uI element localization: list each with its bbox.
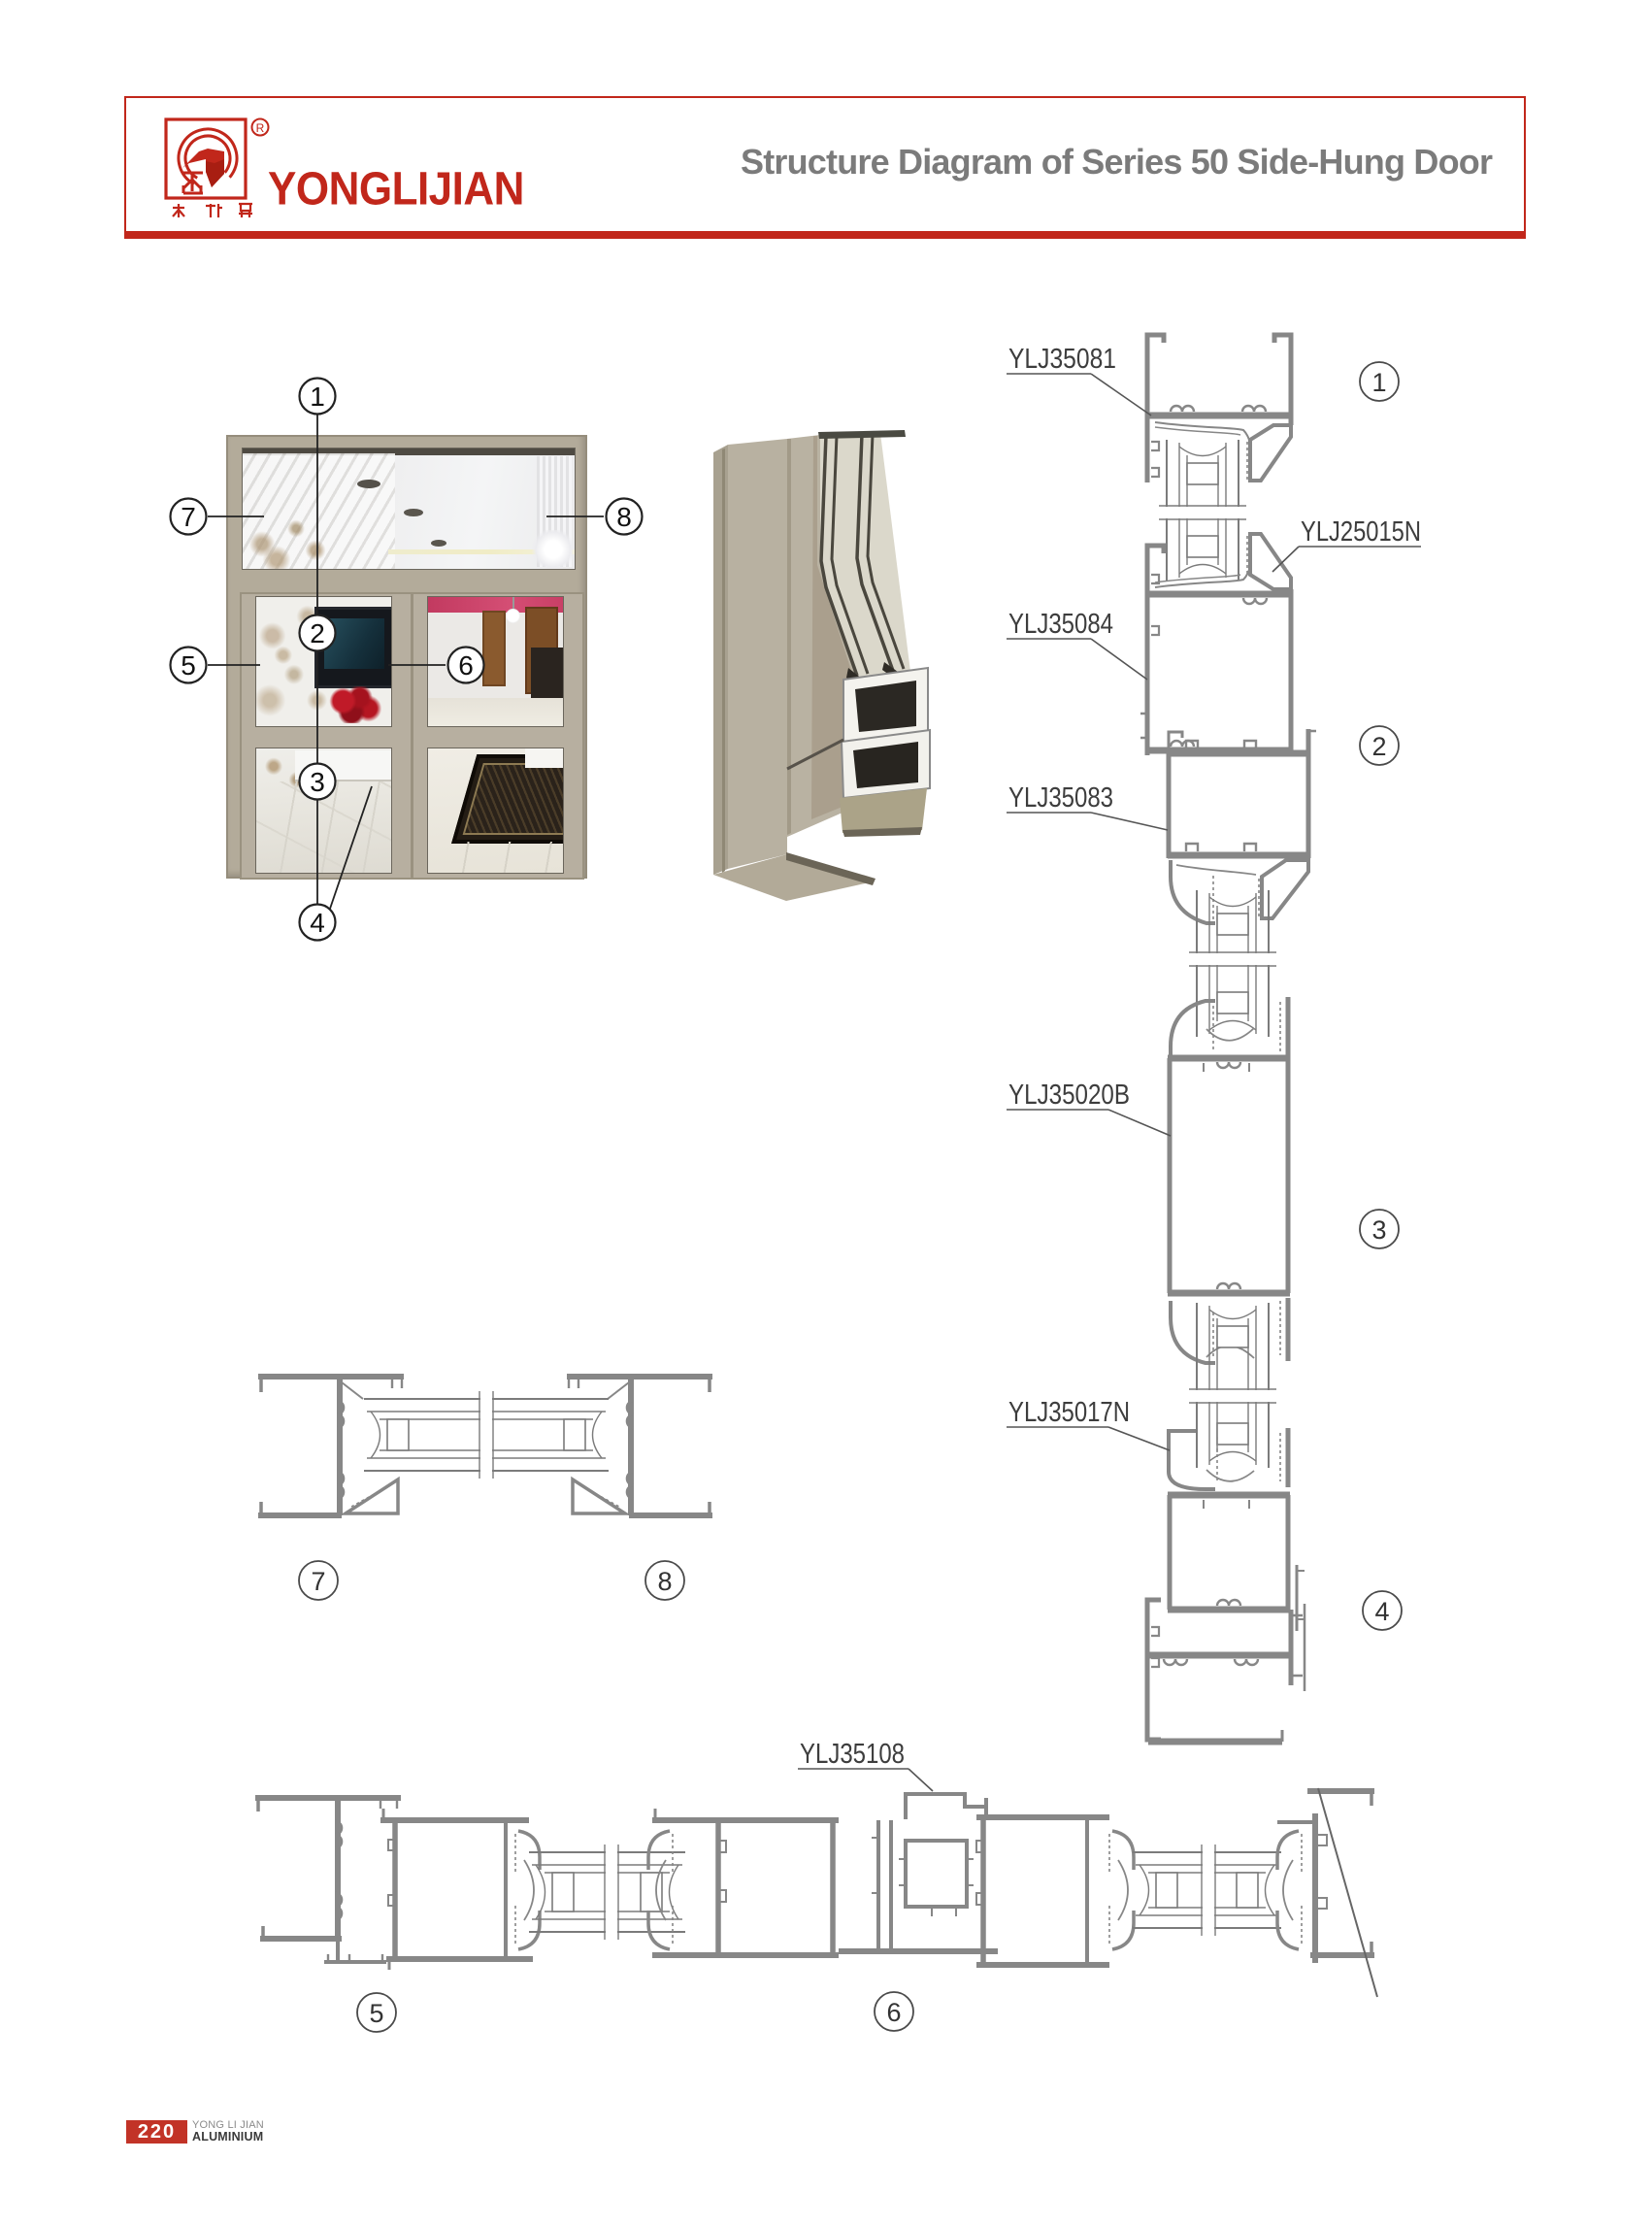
svg-text:4: 4: [310, 908, 325, 938]
svg-text:1: 1: [1371, 368, 1386, 397]
svg-text:8: 8: [616, 502, 632, 532]
svg-text:YLJ35020B: YLJ35020B: [1008, 1080, 1130, 1111]
svg-text:YLJ35083: YLJ35083: [1008, 782, 1113, 814]
svg-text:4: 4: [1374, 1597, 1389, 1626]
svg-text:YLJ35081: YLJ35081: [1008, 344, 1116, 375]
svg-text:2: 2: [1371, 732, 1386, 761]
svg-text:7: 7: [311, 1567, 325, 1596]
svg-text:YLJ35017N: YLJ35017N: [1008, 1397, 1130, 1428]
svg-text:2: 2: [310, 618, 325, 648]
svg-text:1: 1: [310, 382, 325, 412]
svg-text:YLJ35084: YLJ35084: [1008, 609, 1113, 640]
svg-text:5: 5: [369, 1999, 383, 2028]
svg-text:7: 7: [181, 502, 196, 532]
svg-text:8: 8: [657, 1567, 672, 1596]
svg-text:6: 6: [886, 1998, 901, 2027]
svg-text:YLJ35108: YLJ35108: [800, 1739, 905, 1770]
svg-text:3: 3: [1371, 1215, 1386, 1245]
svg-text:3: 3: [310, 767, 325, 797]
svg-text:6: 6: [458, 650, 474, 681]
svg-text:YLJ25015N: YLJ25015N: [1301, 516, 1421, 548]
svg-text:5: 5: [181, 650, 196, 681]
